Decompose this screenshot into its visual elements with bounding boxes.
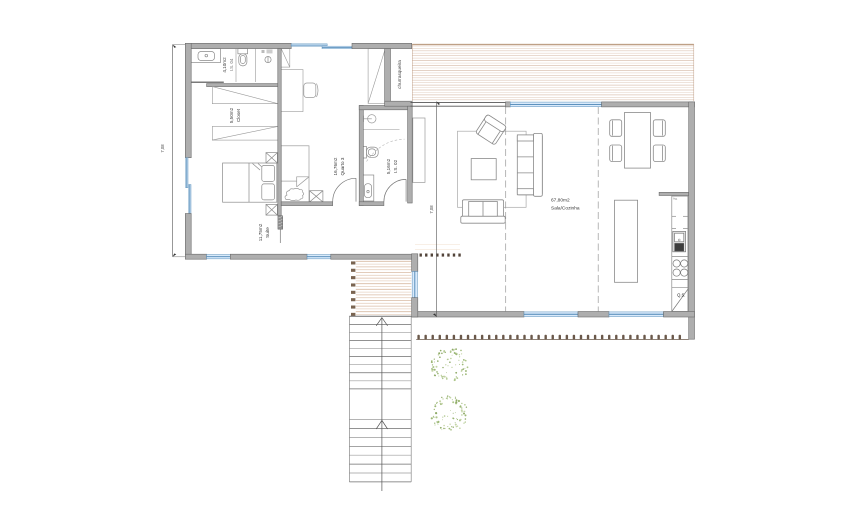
svg-text:11,75m2: 11,75m2 (258, 223, 263, 241)
svg-text:frg.: frg. (673, 197, 677, 201)
svg-text:I.S. 02: I.S. 02 (393, 159, 398, 173)
svg-text:4,10m2: 4,10m2 (222, 57, 227, 73)
svg-text:I.S. 04: I.S. 04 (229, 58, 234, 71)
svg-text:Sala/Cozinha: Sala/Cozinha (551, 206, 580, 212)
svg-text:5,50m2: 5,50m2 (229, 107, 234, 123)
svg-text:Q.S.: Q.S. (677, 293, 685, 298)
svg-text:7,08: 7,08 (160, 144, 165, 153)
svg-text:16,76m2: 16,76m2 (333, 157, 338, 175)
svg-text:Quarto 3: Quarto 3 (340, 157, 345, 175)
svg-text:67,80m2: 67,80m2 (551, 198, 570, 204)
svg-text:Suíte: Suíte (265, 227, 270, 238)
svg-text:Closet: Closet (236, 108, 241, 122)
svg-text:7,08: 7,08 (429, 205, 434, 214)
svg-text:5,16m2: 5,16m2 (386, 158, 391, 174)
svg-text:churrasqueira: churrasqueira (397, 60, 402, 89)
